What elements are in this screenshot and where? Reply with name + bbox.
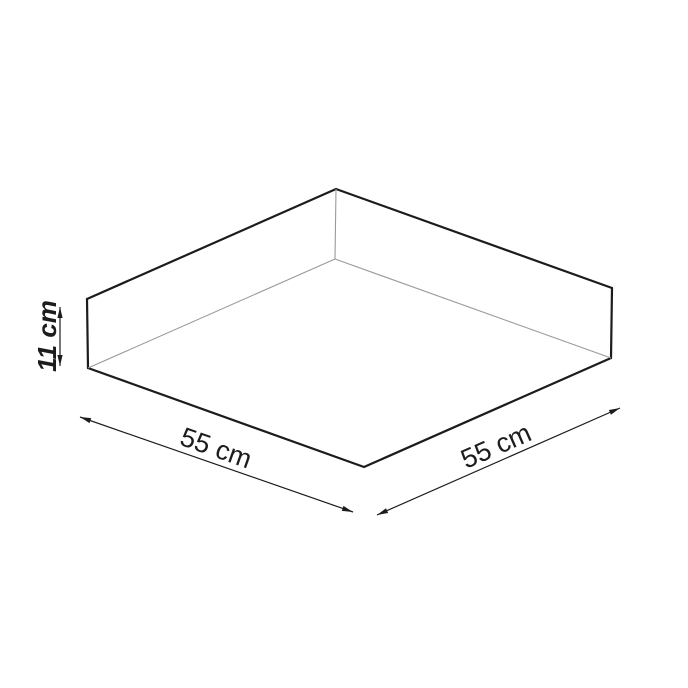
- back-vertical-edge: [335, 189, 336, 259]
- width-right-dimension-line: [377, 408, 620, 515]
- front-bottom-edges: [88, 358, 611, 467]
- product-dimension-diagram: 11 cm 55 cm 55 cm: [0, 0, 688, 688]
- width-right-dimension-label: 55 cm: [456, 417, 535, 474]
- left-vertical-edge: [87, 299, 88, 368]
- width-left-dimension-label: 55 cm: [176, 422, 255, 475]
- dimension-lines: [60, 307, 620, 515]
- right-vertical-edge: [611, 288, 612, 358]
- fixture-outline: [87, 189, 612, 467]
- fixture-inner-edges: [88, 189, 611, 368]
- top-rim-edges: [87, 189, 612, 299]
- height-dimension-label: 11 cm: [32, 300, 62, 372]
- inner-bottom-rim: [88, 259, 611, 368]
- diagram-svg: 11 cm 55 cm 55 cm: [0, 0, 688, 688]
